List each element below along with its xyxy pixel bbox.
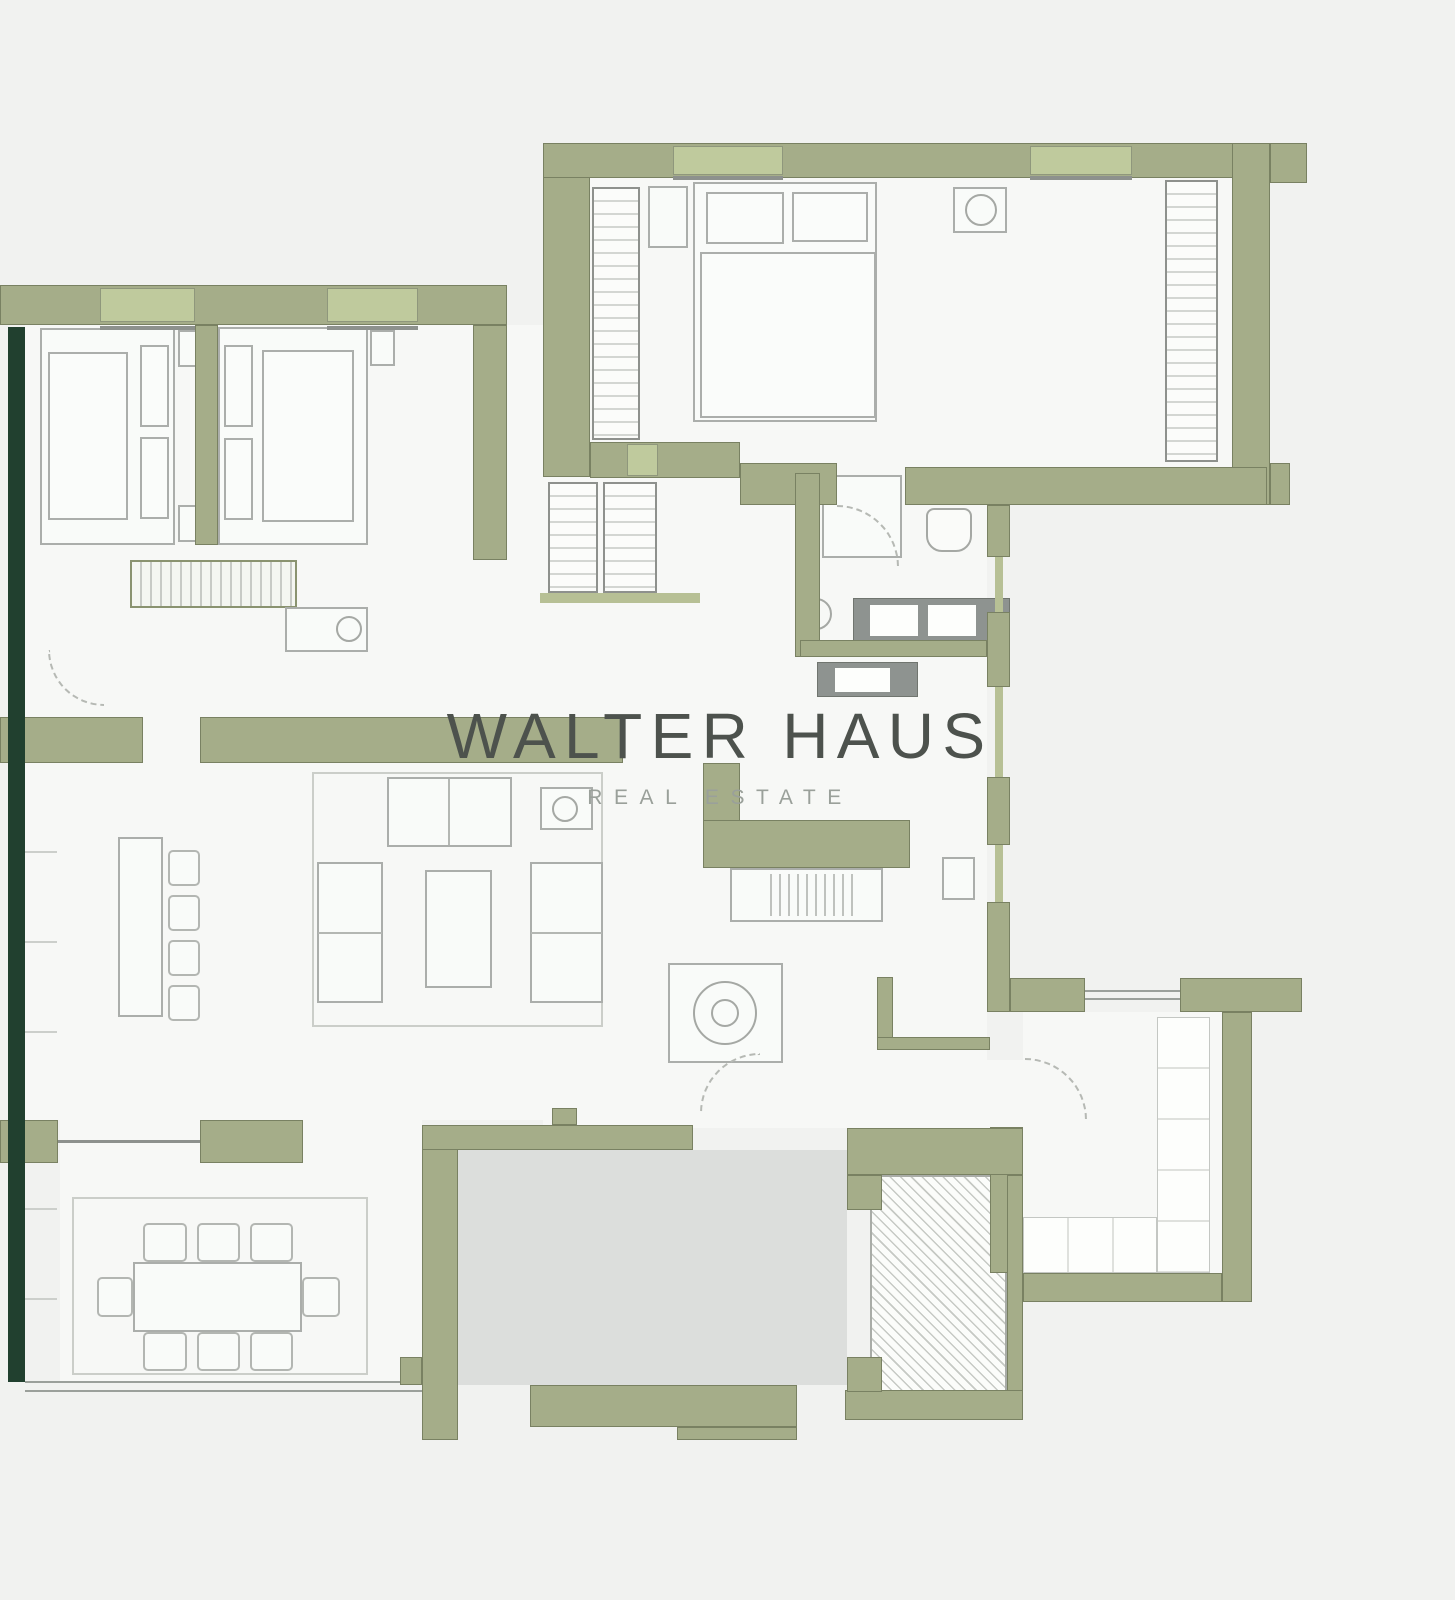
wall-flange-ne xyxy=(1270,143,1307,183)
lamp xyxy=(336,616,362,642)
cabinet-corridor xyxy=(548,482,598,593)
nightstand xyxy=(648,186,688,248)
cabinet-corridor xyxy=(603,482,657,593)
chair xyxy=(143,1332,187,1371)
pillow xyxy=(140,345,169,427)
coffee-table xyxy=(425,870,492,988)
dining-table xyxy=(133,1262,302,1332)
window-bedroom2 xyxy=(327,288,418,322)
plant-unit-split xyxy=(531,932,602,934)
wall-core-nub-west xyxy=(400,1357,422,1385)
facade-glazing xyxy=(8,327,25,1382)
wall-hall-l-horiz xyxy=(877,1037,990,1050)
wall-kitchenroom-north-right xyxy=(1180,978,1302,1012)
wall-master-south-left xyxy=(740,463,837,505)
chair xyxy=(168,895,200,931)
chair xyxy=(197,1223,240,1262)
terrace-edge-line xyxy=(25,1381,422,1383)
window-niche xyxy=(627,444,658,476)
chair xyxy=(168,940,200,976)
elevator-shaft xyxy=(870,1175,1007,1393)
window-sill xyxy=(100,326,195,330)
wall-shaft-south xyxy=(845,1390,1023,1420)
duvet xyxy=(700,252,876,418)
sink-basin xyxy=(928,605,976,636)
wall-bath-west xyxy=(795,473,820,657)
wall-shaft-east xyxy=(1007,1175,1023,1393)
sliding-door-line xyxy=(58,1140,200,1143)
floor-plan-page: { "watermark": { "title": "WALTER HAUS",… xyxy=(0,0,1455,1600)
watermark-subtitle: REAL ESTATE xyxy=(430,786,1010,810)
floor-entry-hall xyxy=(543,1060,1023,1128)
floor-plan-canvas: WALTER HAUS REAL ESTATE xyxy=(0,0,1455,1600)
wall-top-west xyxy=(0,285,507,325)
radiator-fins xyxy=(763,874,857,916)
sink-basin xyxy=(870,605,918,636)
chair xyxy=(250,1332,293,1371)
wall-master-south-right xyxy=(905,467,1267,505)
chair xyxy=(197,1332,240,1371)
kitchen-counter xyxy=(1023,1217,1157,1273)
duvet xyxy=(262,350,354,522)
wall-shaft-north xyxy=(847,1128,1023,1175)
stair-core xyxy=(458,1150,847,1385)
wall-core-south xyxy=(530,1385,797,1427)
terrace-edge-line xyxy=(25,1390,422,1392)
door-glass-segment xyxy=(995,845,1003,902)
wall-master-east xyxy=(1232,143,1270,505)
wall-dining-pier xyxy=(200,1120,303,1163)
window-sill xyxy=(1030,176,1132,180)
wall-core-nub xyxy=(552,1108,577,1125)
duvet xyxy=(48,352,128,520)
wall-core-west xyxy=(422,1125,458,1440)
wall-shaft-stub-bottom xyxy=(847,1357,882,1392)
lamp xyxy=(965,194,997,226)
pillow xyxy=(224,345,253,427)
window-sill xyxy=(673,176,783,180)
wall-master-west xyxy=(543,143,590,477)
plant-unit-split xyxy=(318,932,382,934)
window-bedroom1 xyxy=(100,288,195,322)
pillow xyxy=(140,437,169,519)
wall-dressing-step xyxy=(590,442,740,478)
wall-east-zone-1 xyxy=(987,505,1010,557)
wall-core-south-step xyxy=(677,1427,797,1440)
chair xyxy=(168,850,200,886)
door-glass-segment xyxy=(995,557,1003,612)
chair xyxy=(143,1223,187,1262)
kitchen-window-glazing xyxy=(1085,990,1180,992)
window-sill xyxy=(327,326,418,330)
wall-kitchenroom-south xyxy=(1023,1273,1222,1302)
wall-flange-se xyxy=(1270,463,1290,505)
dresser xyxy=(130,560,297,608)
chair xyxy=(302,1277,340,1317)
window-master-2 xyxy=(1030,146,1132,175)
wall-east-zone-4 xyxy=(987,902,1010,1012)
wall-core-north xyxy=(422,1125,693,1150)
chair xyxy=(250,1223,293,1262)
wall-kitchenroom-north-left xyxy=(1010,978,1085,1012)
pillow xyxy=(224,438,253,520)
cooktop-inset xyxy=(835,668,890,692)
chair xyxy=(97,1277,133,1317)
watermark-title: WALTER HAUS xyxy=(430,699,1010,773)
nightstand xyxy=(370,330,395,366)
sideboard xyxy=(118,837,163,1017)
pillow xyxy=(792,192,868,242)
wardrobe-master-west xyxy=(592,187,640,440)
wardrobe-master-east xyxy=(1165,180,1218,462)
wall-top-master xyxy=(543,143,1270,178)
floor-door-gap xyxy=(143,717,200,763)
wall-base-strip xyxy=(540,593,700,603)
terrace-mullions xyxy=(25,763,57,1120)
chair xyxy=(168,985,200,1021)
pillow xyxy=(706,192,784,244)
kitchen-window-glazing xyxy=(1085,998,1180,1000)
toilet xyxy=(926,508,972,552)
wall-bedroom-divider xyxy=(195,325,218,545)
window-master-1 xyxy=(673,146,783,175)
wall-bedroom2-east xyxy=(473,325,507,560)
wall-bath-south xyxy=(800,640,987,657)
wall-kitchenroom-east xyxy=(1222,1012,1252,1302)
wall-shaft-stub-top xyxy=(847,1175,882,1210)
washbasin xyxy=(942,857,975,900)
kitchen-counter xyxy=(1157,1017,1210,1273)
wall-east-zone-2 xyxy=(987,612,1010,687)
boiler-drum-inner xyxy=(711,999,739,1027)
wall-kitchen-south xyxy=(703,820,910,868)
